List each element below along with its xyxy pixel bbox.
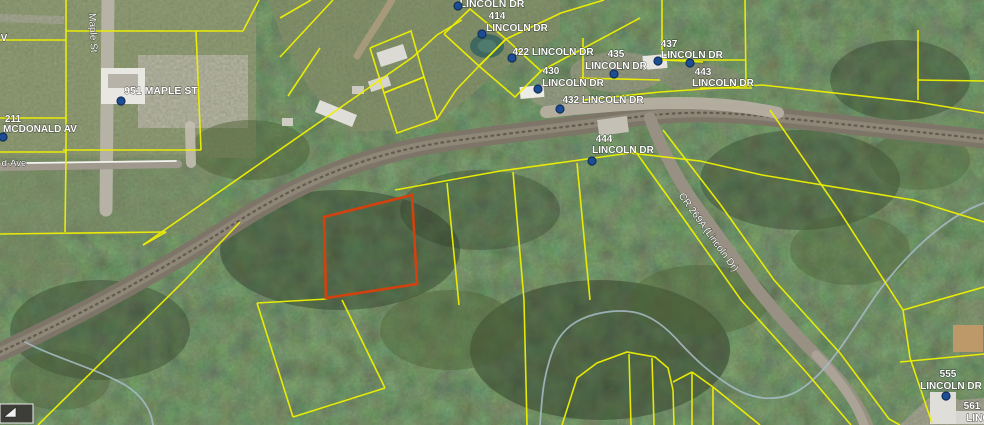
address-marker[interactable] bbox=[610, 70, 618, 78]
address-marker[interactable] bbox=[534, 85, 542, 93]
map-canvas[interactable]: LINCOLN DR414LINCOLN DR422 LINCOLN DR430… bbox=[0, 0, 984, 425]
map-label-addr-561-street: LINC bbox=[966, 413, 984, 424]
parcel-boundary-line bbox=[745, 0, 746, 86]
map-label-addr-561: 561 bbox=[964, 401, 981, 412]
map-widget-layer bbox=[0, 404, 33, 423]
map-label-addr-444-street: LINCOLN DR bbox=[592, 145, 654, 156]
address-marker[interactable] bbox=[556, 105, 564, 113]
map-label-addr-555: 555 bbox=[940, 369, 957, 380]
map-label-addr-432: 432 LINCOLN DR bbox=[562, 95, 644, 106]
address-marker[interactable] bbox=[478, 30, 486, 38]
map-label-addr-414: 414 bbox=[489, 11, 506, 22]
map-label-addr-211-street: MCDONALD AV bbox=[3, 124, 77, 135]
parcel-boundary-line bbox=[65, 158, 66, 232]
map-label-street-maple-st: Maple St bbox=[86, 13, 99, 53]
map-label-street-mcdonald-ave: d-Ave bbox=[2, 158, 27, 169]
address-marker[interactable] bbox=[117, 97, 125, 105]
address-marker[interactable] bbox=[508, 54, 516, 62]
map-label-addr-430-street: LINCOLN DR bbox=[542, 78, 604, 89]
map-label-addr-444: 444 bbox=[596, 134, 613, 145]
map-label-addr-422: 422 LINCOLN DR bbox=[512, 47, 594, 58]
map-label-addr-414-street: LINCOLN DR bbox=[486, 23, 548, 34]
parcel-boundary-line bbox=[918, 80, 984, 81]
map-label-addr-555-street: LINCOLN DR bbox=[920, 381, 982, 392]
map-label-addr-443-street: LINCOLN DR bbox=[692, 78, 754, 89]
tan-roof-house bbox=[953, 325, 983, 352]
driveway-951 bbox=[190, 126, 191, 163]
map-scale-widget bbox=[0, 404, 33, 423]
foliage-grain bbox=[0, 0, 984, 425]
map-label-addr-437: 437 bbox=[661, 39, 678, 50]
address-marker[interactable] bbox=[654, 57, 662, 65]
map-label-addr-951: 951 MAPLE ST bbox=[124, 85, 198, 97]
address-marker[interactable] bbox=[942, 392, 950, 400]
map-label-lincoln-dr-top: LINCOLN DR bbox=[460, 0, 525, 10]
map-label-addr-443: 443 bbox=[695, 67, 712, 78]
address-marker[interactable] bbox=[0, 133, 7, 141]
address-marker[interactable] bbox=[686, 59, 694, 67]
mcdonald-ave-road bbox=[0, 164, 178, 167]
address-marker[interactable] bbox=[454, 2, 462, 10]
shed-2 bbox=[282, 118, 293, 126]
map-label-addr-430: 430 bbox=[543, 66, 560, 77]
map-label-addr-435: 435 bbox=[608, 49, 625, 60]
address-marker[interactable] bbox=[588, 157, 596, 165]
aerial-parcel-map[interactable]: LINCOLN DR414LINCOLN DR422 LINCOLN DR430… bbox=[0, 0, 984, 425]
map-label-label-v-cut: V bbox=[1, 33, 8, 44]
